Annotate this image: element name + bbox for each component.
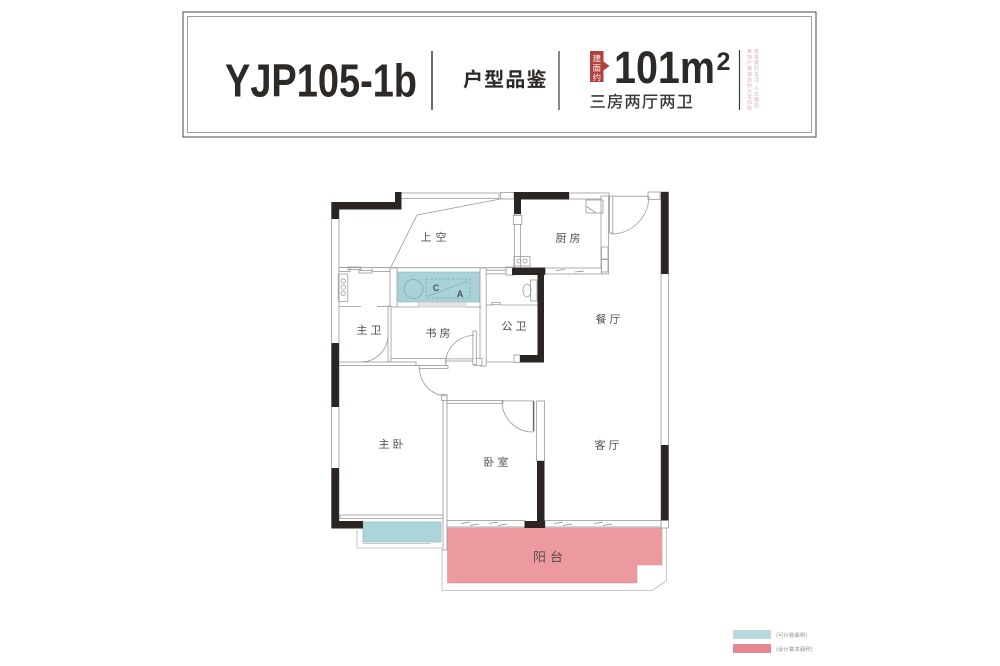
svg-text:C: C — [433, 283, 440, 293]
svg-text:A: A — [457, 289, 464, 299]
svg-text:101m: 101m — [614, 42, 715, 93]
svg-text:2: 2 — [717, 48, 731, 76]
svg-text:YJP105-1b: YJP105-1b — [225, 55, 417, 107]
